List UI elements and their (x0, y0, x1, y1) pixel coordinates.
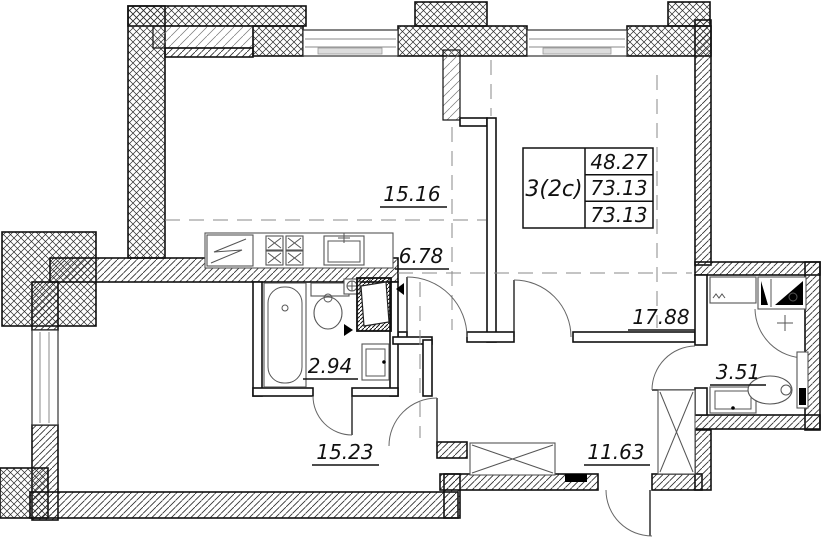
partition-hall-a (467, 332, 514, 342)
door-marker-bath (344, 324, 353, 336)
wall-stub-between-rooms (443, 50, 460, 120)
toilet-symbol (311, 283, 349, 329)
wall-top-b (398, 26, 527, 56)
floor-plan-drawing: 3(2c) 48.27 73.13 73.13 15.16 6.78 17.88… (0, 0, 823, 538)
shelf-symbol (710, 277, 756, 303)
label-living-room: 15.23 (316, 440, 373, 464)
kitchen-fixtures (205, 233, 393, 268)
hallway-fixtures (470, 390, 695, 475)
wall-shower-top (695, 262, 820, 275)
label-hallway: 11.63 (587, 440, 644, 464)
window-top-kitchen (303, 30, 398, 56)
fridge-symbol (207, 235, 253, 266)
partition-kitchen-bedroom (487, 118, 496, 342)
floor-plan-page: 3(2c) 48.27 73.13 73.13 15.16 6.78 17.88… (0, 0, 823, 538)
label-shower-room: 3.51 (716, 360, 761, 384)
pilaster-top-middle (415, 2, 487, 26)
wall-shower-bottom (688, 415, 820, 429)
entrance-threshold (565, 474, 587, 482)
wardrobe-bottom-symbol (470, 443, 555, 475)
kitchen-sink-symbol (324, 233, 364, 265)
bath-sink-symbol (362, 344, 389, 380)
label-bathroom: 2.94 (308, 354, 353, 378)
radiator-bedroom (543, 48, 611, 54)
wall-inner-band (165, 48, 253, 57)
washer-dryer-symbol (758, 277, 806, 309)
door-corridor (407, 277, 467, 337)
washing-machine-symbol (357, 278, 391, 331)
partition-niche-side (423, 340, 432, 396)
partition-hall-b (573, 332, 695, 342)
label-kitchen-zone: 6.78 (399, 244, 444, 268)
towel-rail-symbol (797, 352, 808, 408)
wall-right-bedroom (695, 20, 711, 265)
window-left-living (32, 330, 58, 425)
door-shower-room (652, 346, 695, 390)
partition-connector (460, 118, 487, 126)
shower-room-fixtures (710, 277, 808, 413)
label-bedroom: 17.88 (632, 305, 689, 329)
partition-shower-left-a (695, 275, 707, 345)
unit-type-label: 3(2c) (525, 177, 582, 202)
window-top-bedroom (527, 30, 627, 56)
bathtub-symbol (264, 283, 306, 387)
door-entrance (606, 490, 652, 536)
area-value-1: 48.27 (590, 150, 648, 174)
door-bedroom (514, 280, 571, 337)
partition-bath-bottom-b (352, 388, 398, 396)
label-kitchen-living: 15.16 (383, 182, 440, 206)
area-value-3: 73.13 (590, 203, 647, 227)
wardrobe-right-symbol (658, 390, 695, 474)
partition-bath-bottom-a (253, 388, 313, 396)
radiator-kitchen (318, 48, 382, 54)
door-bathroom (313, 396, 352, 435)
title-block: 3(2c) 48.27 73.13 73.13 (523, 148, 653, 228)
wall-top-a (253, 26, 303, 56)
wall-right-entrance (695, 430, 711, 490)
partition-shower-left-b (695, 388, 707, 415)
partition-step-wall (437, 442, 467, 458)
door-living-room (389, 398, 437, 446)
wall-beam-insulation (153, 26, 253, 48)
wall-bottom-living (30, 492, 458, 518)
partition-bath-left (253, 282, 262, 396)
area-value-2: 73.13 (590, 176, 647, 200)
wall-left-lower-a (32, 282, 58, 330)
